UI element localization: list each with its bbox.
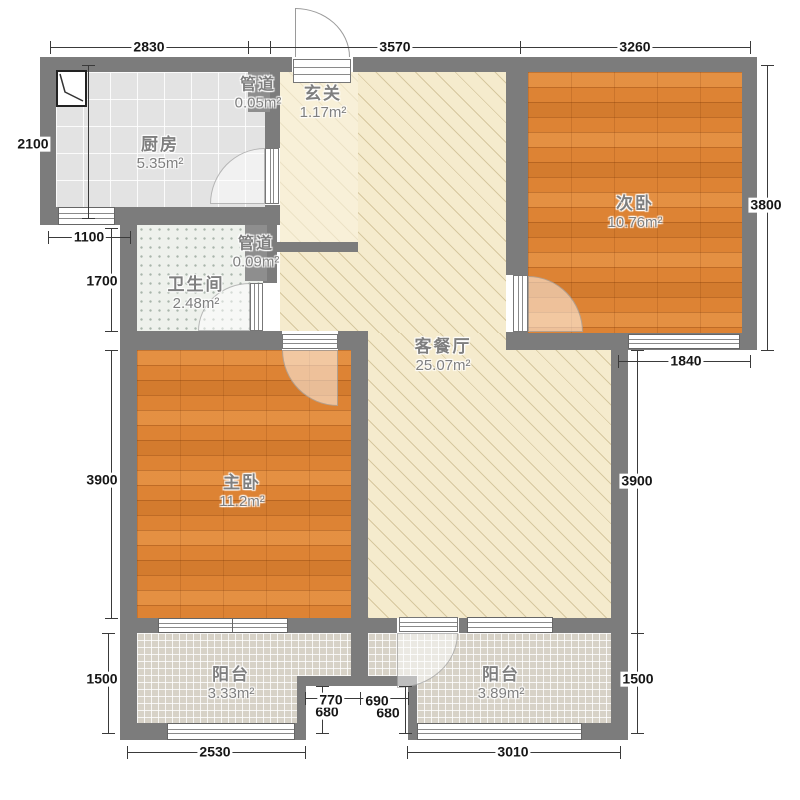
balcony-right-top-window bbox=[467, 617, 553, 633]
dimension-tick bbox=[620, 746, 621, 759]
bathroom-door-panel bbox=[250, 283, 263, 331]
dimension-tick bbox=[750, 355, 751, 368]
balcony-right-window bbox=[417, 723, 582, 740]
dimension-line bbox=[405, 686, 406, 733]
room-label-living: 客餐厅 25.07m² bbox=[415, 332, 472, 374]
dimension-line bbox=[88, 65, 89, 218]
dim-label-left-4: 3900 bbox=[84, 473, 119, 488]
dimension-tick bbox=[105, 350, 118, 351]
room-area: 3.89m² bbox=[478, 685, 525, 702]
room-label-bathroom: 卫生间 2.48m² bbox=[168, 270, 225, 312]
dimension-tick bbox=[631, 733, 644, 734]
dim-label-left-5: 1500 bbox=[84, 672, 119, 687]
room-name: 管道 bbox=[235, 71, 282, 95]
dimension-tick bbox=[305, 746, 306, 759]
room-name: 卫生间 bbox=[168, 270, 225, 295]
bathroom-door-opening bbox=[263, 283, 277, 331]
room-area: 25.07m² bbox=[415, 357, 472, 374]
room-label-balcony-right: 阳台 3.89m² bbox=[478, 660, 525, 702]
room-name: 主卧 bbox=[219, 468, 265, 493]
dim-label-right-2: 1840 bbox=[668, 354, 703, 369]
wall-hallway-stub bbox=[277, 242, 358, 252]
bedroom1-door-panel bbox=[282, 334, 338, 349]
dimension-tick bbox=[316, 733, 329, 734]
room-name: 次卧 bbox=[607, 189, 662, 214]
dim-label-top-1: 2830 bbox=[131, 40, 166, 55]
entry-door-swing-icon bbox=[295, 8, 350, 57]
dimension-tick bbox=[82, 218, 95, 219]
dim-label-recess-690: 690 bbox=[363, 694, 390, 709]
dimension-tick bbox=[408, 692, 409, 705]
floor-plan: 2830 3570 3260 2100 1100 1700 3900 1500 … bbox=[0, 0, 800, 800]
dim-label-left-3: 1700 bbox=[84, 274, 119, 289]
dimension-tick bbox=[618, 355, 619, 368]
room-name: 阳台 bbox=[478, 660, 525, 685]
dimension-tick bbox=[248, 41, 249, 54]
dim-label-bottom-2: 3010 bbox=[495, 745, 530, 760]
dimension-tick bbox=[360, 692, 361, 705]
dimension-tick bbox=[305, 692, 306, 705]
room-name: 管道 bbox=[233, 230, 280, 254]
dimension-tick bbox=[105, 331, 118, 332]
dimension-tick bbox=[407, 746, 408, 759]
room-label-duct-top: 管道 0.05m² bbox=[235, 71, 282, 112]
dimension-tick bbox=[399, 686, 412, 687]
dim-label-top-3: 3260 bbox=[617, 40, 652, 55]
wall-top bbox=[40, 57, 757, 72]
bedroom2-window bbox=[628, 334, 740, 349]
dimension-tick bbox=[761, 65, 774, 66]
dimension-tick bbox=[761, 350, 774, 351]
living-room-floor bbox=[368, 333, 611, 618]
dim-label-right-4: 1500 bbox=[620, 672, 655, 687]
room-label-hallway: 玄关 1.17m² bbox=[300, 79, 347, 121]
balcony-right-door-panel bbox=[399, 617, 458, 632]
dimension-tick bbox=[48, 231, 49, 244]
room-name: 客餐厅 bbox=[415, 332, 472, 357]
bedroom1-sliding-window bbox=[232, 618, 288, 633]
room-area: 2.48m² bbox=[168, 295, 225, 312]
room-area: 3.33m² bbox=[208, 685, 255, 702]
wall-left-lower bbox=[120, 207, 137, 740]
dimension-tick bbox=[102, 633, 115, 634]
dim-label-bottom-1: 2530 bbox=[197, 745, 232, 760]
dimension-tick bbox=[105, 618, 118, 619]
room-area: 0.09m² bbox=[233, 254, 280, 271]
dimension-tick bbox=[50, 41, 51, 54]
dimension-tick bbox=[631, 350, 644, 351]
room-name: 玄关 bbox=[300, 79, 347, 104]
dimension-tick bbox=[316, 686, 329, 687]
bedroom2-door-panel bbox=[513, 275, 528, 332]
dimension-tick bbox=[82, 65, 95, 66]
kitchen-window bbox=[58, 207, 115, 225]
room-label-duct-mid: 管道 0.09m² bbox=[233, 230, 280, 271]
room-label-bedroom2: 次卧 10.76m² bbox=[607, 189, 662, 231]
room-name: 阳台 bbox=[208, 660, 255, 685]
room-label-bedroom1: 主卧 11.2m² bbox=[219, 468, 265, 510]
balcony-left-window bbox=[167, 723, 295, 740]
dimension-tick bbox=[105, 228, 118, 229]
dim-label-recess-770: 770 bbox=[317, 693, 344, 708]
dim-label-right-1: 3800 bbox=[748, 198, 783, 213]
kitchen-door-panel bbox=[265, 148, 279, 204]
wall-middle bbox=[351, 333, 368, 686]
dim-label-left-1: 2100 bbox=[15, 137, 50, 152]
dimension-tick bbox=[130, 231, 131, 244]
dimension-line bbox=[637, 350, 638, 633]
dimension-tick bbox=[270, 41, 271, 54]
room-area: 5.35m² bbox=[137, 155, 184, 172]
room-label-kitchen: 厨房 5.35m² bbox=[137, 130, 184, 172]
dimension-tick bbox=[520, 41, 521, 54]
room-area: 11.2m² bbox=[219, 493, 265, 510]
dim-label-left-2: 1100 bbox=[72, 230, 106, 245]
wall-recess-left bbox=[297, 676, 306, 740]
room-name: 厨房 bbox=[137, 130, 184, 155]
dimension-tick bbox=[750, 41, 751, 54]
dimension-tick bbox=[399, 733, 412, 734]
dimension-tick bbox=[102, 733, 115, 734]
dim-label-top-2: 3570 bbox=[377, 40, 412, 55]
dim-label-right-3: 3900 bbox=[619, 474, 654, 489]
room-area: 1.17m² bbox=[300, 104, 347, 121]
bedroom1-sliding-window bbox=[158, 618, 236, 633]
room-label-balcony-left: 阳台 3.33m² bbox=[208, 660, 255, 702]
flue-icon bbox=[56, 70, 87, 107]
dimension-tick bbox=[127, 746, 128, 759]
room-area: 10.76m² bbox=[607, 214, 662, 231]
room-area: 0.05m² bbox=[235, 95, 282, 112]
